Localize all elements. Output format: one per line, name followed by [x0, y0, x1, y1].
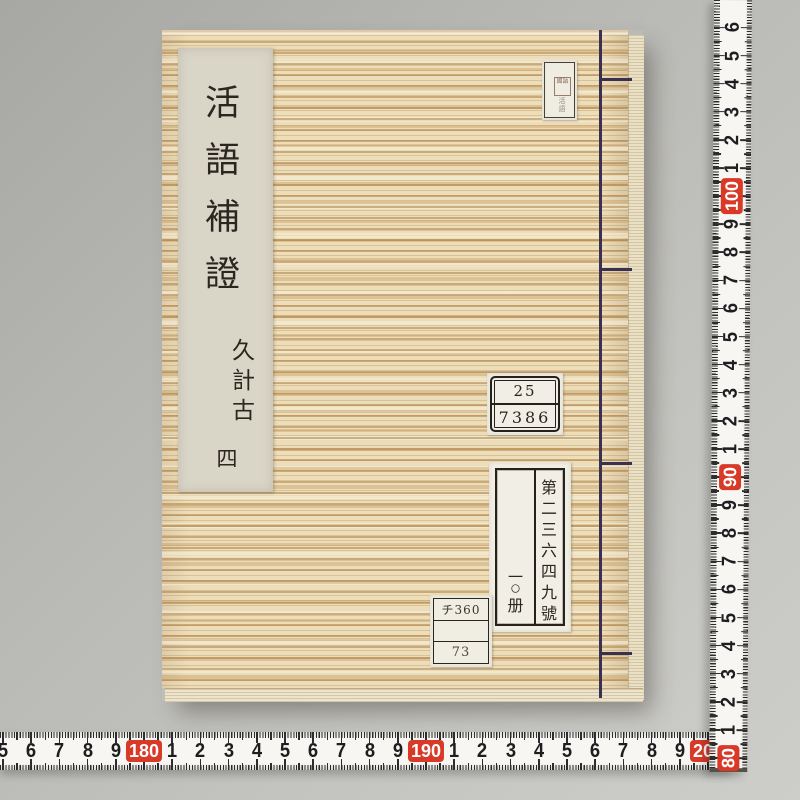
half-cm-tick	[496, 732, 497, 740]
half-cm-tick	[744, 69, 752, 70]
half-cm-tick	[101, 763, 102, 771]
ruler-number: 3	[498, 739, 524, 763]
ruler-number: 7	[47, 739, 73, 763]
half-cm-tick	[270, 763, 271, 771]
binding-stitch	[599, 268, 632, 271]
ruler-number: 8	[718, 520, 742, 546]
half-cm-tick	[742, 434, 750, 435]
half-cm-tick	[743, 181, 751, 182]
photo-background: 活語補證 久計古 四 國語 活語 25 7386 第二三六四九號	[0, 0, 800, 800]
ruler-number: 5	[721, 43, 745, 69]
ruler-number: 4	[719, 352, 743, 378]
binding-stitch	[599, 652, 632, 655]
half-cm-tick	[693, 732, 694, 740]
mm-ticks-top	[0, 732, 731, 738]
half-cm-tick	[327, 763, 328, 771]
ruler-number: 9	[720, 211, 744, 237]
half-cm-tick	[609, 763, 610, 771]
half-cm-tick	[744, 125, 752, 126]
shelf-mark-row2	[434, 620, 488, 642]
half-cm-tick	[580, 763, 581, 771]
ruler-number: 7	[329, 739, 355, 763]
book-cover: 活語補證 久計古 四 國語 活語 25 7386 第二三六四九號	[162, 30, 628, 688]
half-cm-tick	[552, 763, 553, 771]
ruler-number: 8	[75, 739, 101, 763]
ruler-number: 1	[716, 717, 740, 743]
ruler-highlight-box: 180	[126, 740, 162, 762]
classification-seal-label: 國語 活語	[542, 60, 577, 120]
half-cm-tick	[714, 41, 722, 42]
half-cm-tick	[744, 41, 752, 42]
shelf-mark-box: チ360 73	[433, 598, 489, 664]
ruler-highlight-box: 100	[721, 178, 743, 214]
half-cm-tick	[73, 763, 74, 771]
ruler-number: 6	[717, 577, 741, 603]
ruler-number: 1	[718, 436, 742, 462]
half-cm-tick	[665, 763, 666, 771]
count-top: 一	[508, 569, 523, 585]
title-slip: 活語補證 久計古 四	[178, 48, 273, 492]
ruler-highlight-box: 190	[408, 740, 444, 762]
book: 活語補證 久計古 四 國語 活語 25 7386 第二三六四九號	[162, 30, 643, 701]
half-cm-tick	[743, 266, 751, 267]
seal-sub-text: 活語	[556, 97, 568, 113]
half-cm-tick	[741, 519, 749, 520]
half-cm-tick	[711, 462, 719, 463]
ruler-number: 2	[188, 739, 214, 763]
call-number-label: 25 7386	[487, 373, 563, 435]
ruler-number: 2	[470, 739, 496, 763]
half-cm-tick	[157, 763, 158, 771]
ruler-number: 9	[718, 492, 742, 518]
half-cm-tick	[710, 631, 718, 632]
call-number-box: 25 7386	[490, 376, 560, 432]
accession-number-text: 第二三六四九號	[541, 477, 557, 624]
half-cm-tick	[710, 659, 718, 660]
shelf-mark-row1: チ360	[434, 599, 488, 620]
half-cm-tick	[439, 763, 440, 771]
ruler-number: 7	[719, 267, 743, 293]
half-cm-tick	[740, 687, 748, 688]
ruler-number: 3	[719, 380, 743, 406]
half-cm-tick	[298, 763, 299, 771]
title-reading: 久計古	[232, 336, 255, 426]
half-cm-tick	[740, 715, 748, 716]
count-circle: 〇	[511, 585, 520, 596]
ruler-number: 5	[717, 605, 741, 631]
ruler-number: 5	[719, 324, 743, 350]
call-number-bottom: 7386	[492, 405, 558, 430]
ruler-number: 6	[300, 739, 326, 763]
half-cm-tick	[129, 763, 130, 771]
seal-label-border: 國語 活語	[544, 62, 575, 118]
count-bottom: 册	[507, 596, 523, 616]
ruler-number: 3	[216, 739, 242, 763]
volume-count: 一 〇 册	[499, 569, 532, 616]
half-cm-tick	[712, 378, 720, 379]
half-cm-tick	[214, 732, 215, 740]
ruler-number: 9	[385, 739, 411, 763]
half-cm-tick	[693, 763, 694, 771]
half-cm-tick	[468, 763, 469, 771]
ruler-number: 6	[18, 739, 44, 763]
half-cm-tick	[710, 603, 718, 604]
half-cm-tick	[637, 732, 638, 740]
ruler-number: 4	[717, 633, 741, 659]
half-cm-tick	[742, 378, 750, 379]
half-cm-tick	[411, 732, 412, 740]
half-cm-tick	[713, 97, 721, 98]
ruler-number: 6	[721, 15, 745, 41]
half-cm-tick	[637, 763, 638, 771]
half-cm-tick	[383, 763, 384, 771]
half-cm-tick	[45, 763, 46, 771]
ruler-number: 4	[526, 739, 552, 763]
half-cm-tick	[355, 763, 356, 771]
half-cm-tick	[741, 575, 749, 576]
half-cm-tick	[73, 732, 74, 740]
ruler-number: 9	[667, 739, 693, 763]
ruler-number: 2	[720, 127, 744, 153]
ruler-highlight-box: 80	[717, 745, 739, 771]
accession-divider	[534, 470, 536, 624]
volume-number: 四	[216, 447, 238, 471]
ruler-number: 2	[717, 689, 741, 715]
half-cm-tick	[129, 732, 130, 740]
half-cm-tick	[714, 69, 722, 70]
half-cm-tick	[741, 603, 749, 604]
owner-seal-stamp: 國語	[554, 77, 571, 96]
ruler-number: 6	[719, 296, 743, 322]
ruler-number: 5	[554, 739, 580, 763]
ruler-number: 1	[159, 739, 185, 763]
accession-number-label: 第二三六四九號 一 〇 册	[489, 462, 571, 632]
ruler-number: 8	[357, 739, 383, 763]
ruler-number: 1	[720, 155, 744, 181]
ruler-number: 1	[441, 739, 467, 763]
ruler-highlight-box: 90	[719, 464, 741, 490]
half-cm-tick	[712, 322, 720, 323]
ruler-number: 7	[717, 548, 741, 574]
binding-thread	[599, 30, 602, 698]
half-cm-tick	[355, 732, 356, 740]
half-cm-tick	[742, 350, 750, 351]
half-cm-tick	[186, 763, 187, 771]
ruler-number: 2	[718, 408, 742, 434]
title-text: 活語補證	[205, 76, 240, 304]
half-cm-tick	[743, 294, 751, 295]
ruler-number: 4	[244, 739, 270, 763]
half-cm-tick	[709, 743, 717, 744]
half-cm-tick	[744, 97, 752, 98]
half-cm-tick	[743, 210, 751, 211]
binding-stitch	[599, 462, 632, 465]
shelf-mark-row3: 73	[434, 641, 488, 663]
half-cm-tick	[242, 763, 243, 771]
half-cm-tick	[712, 350, 720, 351]
half-cm-tick	[742, 406, 750, 407]
horizontal-ruler-tape: 56789180123456789190123456789200	[0, 732, 731, 770]
half-cm-tick	[411, 763, 412, 771]
half-cm-tick	[16, 763, 17, 771]
ruler-number: 4	[720, 71, 744, 97]
half-cm-tick	[741, 547, 749, 548]
binding-stitch	[599, 78, 632, 81]
vertical-ruler-tape: 6543211009876543219098765432180	[709, 0, 752, 772]
ruler-number: 3	[720, 99, 744, 125]
ruler-number: 5	[0, 739, 16, 763]
half-cm-tick	[524, 763, 525, 771]
half-cm-tick	[743, 322, 751, 323]
ruler-number: 8	[639, 739, 665, 763]
shelf-mark-label: チ360 73	[430, 595, 492, 667]
ruler-number: 3	[717, 661, 741, 687]
half-cm-tick	[713, 181, 721, 182]
ruler-number: 9	[103, 739, 129, 763]
page-edge-bottom	[165, 688, 643, 702]
half-cm-tick	[740, 659, 748, 660]
accession-box: 第二三六四九號 一 〇 册	[495, 468, 565, 626]
half-cm-tick	[740, 743, 748, 744]
half-cm-tick	[743, 238, 751, 239]
half-cm-tick	[741, 631, 749, 632]
ruler-number: 8	[719, 239, 743, 265]
call-number-top: 25	[492, 378, 558, 405]
half-cm-tick	[496, 763, 497, 771]
half-cm-tick	[741, 491, 749, 492]
mm-ticks-bottom	[0, 765, 731, 771]
half-cm-tick	[214, 763, 215, 771]
ruler-number: 5	[272, 739, 298, 763]
ruler-number: 7	[611, 739, 637, 763]
half-cm-tick	[744, 153, 752, 154]
page-edge-right	[628, 35, 644, 700]
ruler-number: 6	[582, 739, 608, 763]
half-cm-tick	[742, 462, 750, 463]
